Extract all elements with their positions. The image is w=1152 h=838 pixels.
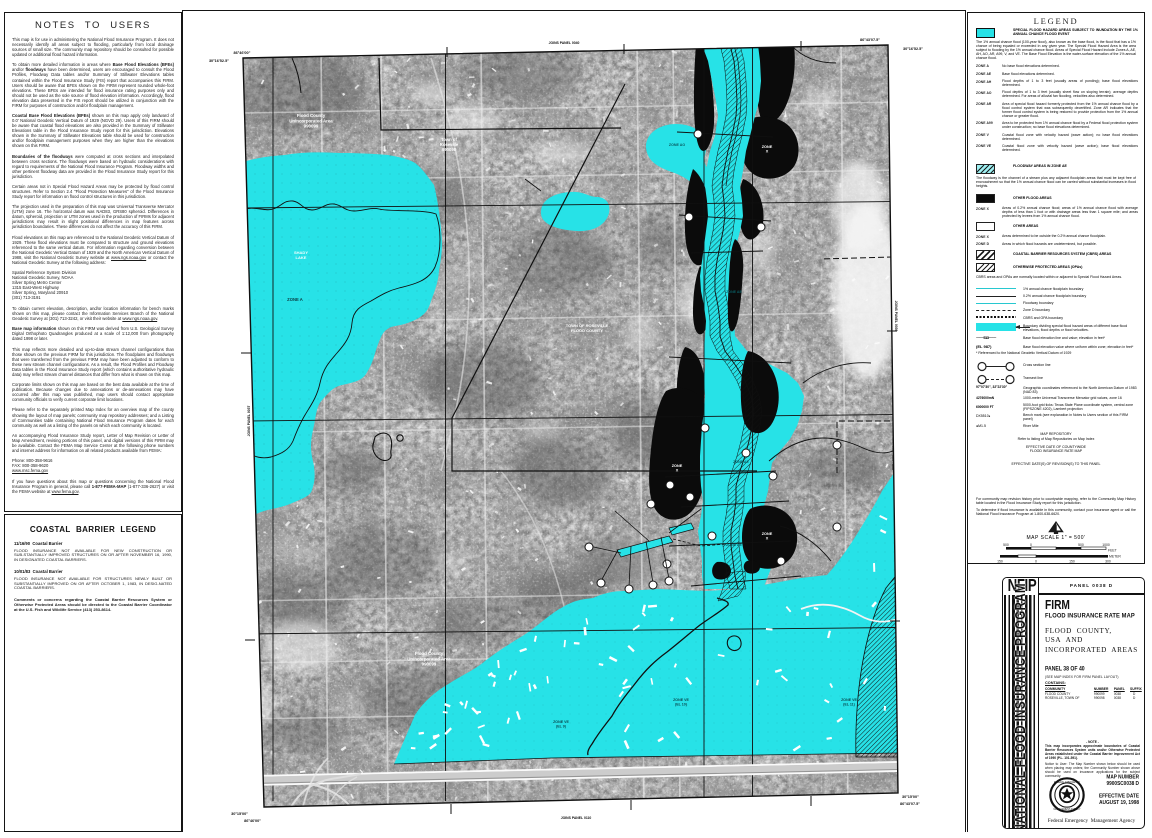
svg-text:X: X: [766, 150, 769, 154]
svg-text:86°43'07.5": 86°43'07.5": [900, 802, 920, 806]
svg-text:Unincorporated Area: Unincorporated Area: [407, 656, 451, 661]
svg-text:0: 0: [1035, 560, 1037, 564]
svg-text:ZONE: ZONE: [762, 145, 773, 149]
svg-text:ZONE VE: ZONE VE: [553, 720, 569, 724]
svg-text:Flood County: Flood County: [297, 113, 326, 118]
svg-text:JOINS PANEL 0040: JOINS PANEL 0040: [549, 41, 580, 45]
svg-text:300: 300: [1105, 560, 1111, 564]
svg-text:ZONE A: ZONE A: [287, 297, 303, 302]
svg-text:(EL 10): (EL 10): [675, 703, 688, 707]
svg-text:JOINS PANEL 0110: JOINS PANEL 0110: [561, 816, 592, 820]
svg-text:150: 150: [1069, 560, 1075, 564]
svg-text:150: 150: [997, 560, 1003, 564]
svg-text:FEET: FEET: [1108, 549, 1117, 553]
svg-text:X: X: [766, 537, 769, 541]
svg-text:Unincorporated Area: Unincorporated Area: [289, 118, 333, 123]
svg-text:Flood County: Flood County: [415, 651, 444, 656]
svg-text:FLOOD COUNTY: FLOOD COUNTY: [571, 328, 603, 333]
svg-text:ZONE AE: ZONE AE: [726, 543, 742, 547]
svg-text:ZONE AE: ZONE AE: [726, 290, 742, 294]
svg-text:0: 0: [1030, 543, 1032, 547]
svg-text:MANAGEMENT AGENCY: MANAGEMENT AGENCY: [1054, 808, 1081, 811]
svg-text:500: 500: [1003, 543, 1009, 547]
svg-text:30°15'00": 30°15'00": [231, 812, 248, 816]
svg-text:(EL 9): (EL 9): [556, 725, 567, 729]
svg-text:1000: 1000: [1102, 543, 1110, 547]
svg-text:LAKE: LAKE: [296, 255, 307, 260]
svg-text:FEDERAL EMERGENCY: FEDERAL EMERGENCY: [1054, 781, 1081, 784]
svg-text:ZONE: ZONE: [762, 532, 773, 536]
svg-text:ZONE AO: ZONE AO: [669, 143, 685, 147]
svg-text:X: X: [676, 469, 679, 473]
svg-text:86°46'00": 86°46'00": [244, 819, 261, 823]
svg-text:JOINS PANEL 0039: JOINS PANEL 0039: [894, 301, 898, 332]
svg-text:30°15'00": 30°15'00": [902, 795, 919, 799]
svg-text:86°43'07.5": 86°43'07.5": [860, 38, 880, 42]
svg-text:86°46'00": 86°46'00": [234, 51, 251, 55]
svg-text:990098: 990098: [442, 147, 457, 152]
svg-text:990099: 990099: [422, 662, 437, 667]
svg-text:30°16'52.5": 30°16'52.5": [209, 59, 229, 63]
svg-text:INTERSTATE 99: INTERSTATE 99: [928, 771, 954, 775]
svg-text:ZONE AE: ZONE AE: [733, 460, 749, 464]
svg-text:METERS: METERS: [1109, 555, 1121, 559]
svg-text:JOINS PANEL 0037: JOINS PANEL 0037: [247, 405, 251, 436]
svg-text:500: 500: [1078, 543, 1084, 547]
svg-text:ZONE: ZONE: [672, 464, 683, 468]
svg-text:ZONE VE: ZONE VE: [841, 698, 857, 702]
svg-text:ZONE VE: ZONE VE: [673, 698, 689, 702]
svg-text:(EL 11): (EL 11): [843, 703, 856, 707]
svg-text:30°16'52.5": 30°16'52.5": [903, 47, 923, 51]
svg-text:990099: 990099: [304, 124, 319, 129]
